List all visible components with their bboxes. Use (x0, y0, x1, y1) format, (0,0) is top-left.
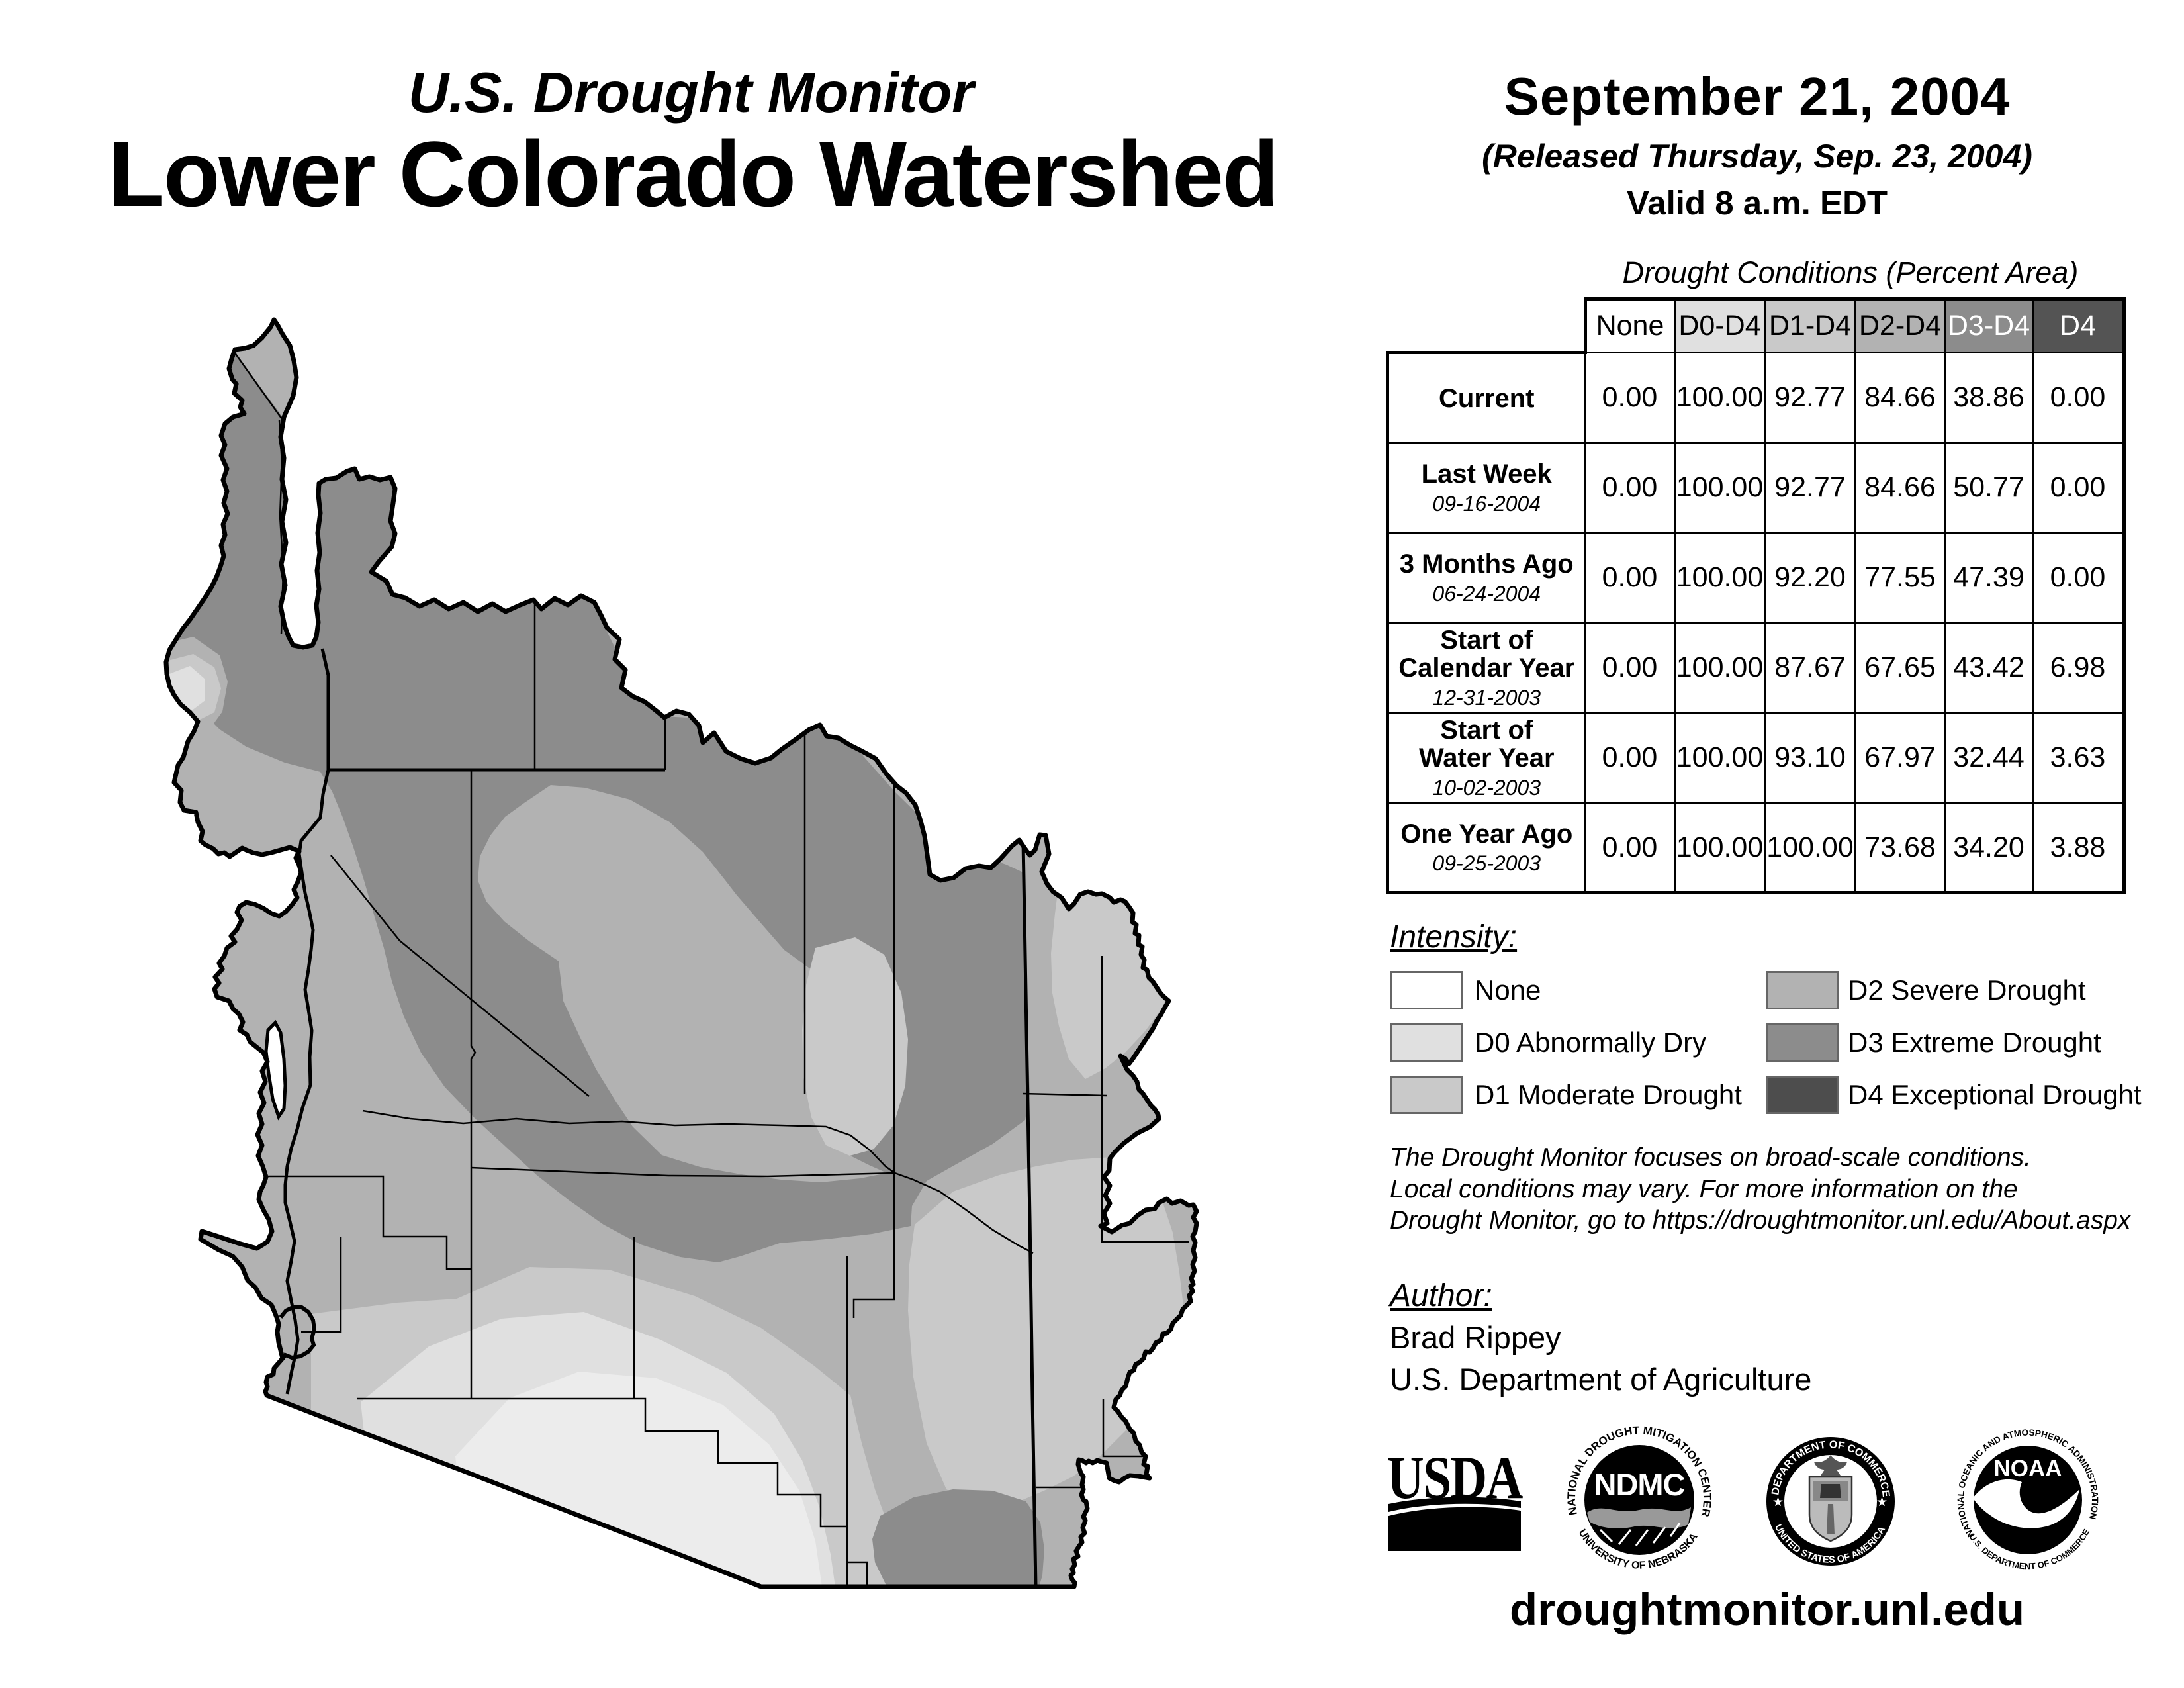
svg-text:★: ★ (1876, 1495, 1888, 1509)
svg-text:NDMC: NDMC (1594, 1467, 1685, 1502)
svg-text:NOAA: NOAA (1993, 1456, 2062, 1481)
svg-text:★: ★ (1772, 1495, 1784, 1509)
